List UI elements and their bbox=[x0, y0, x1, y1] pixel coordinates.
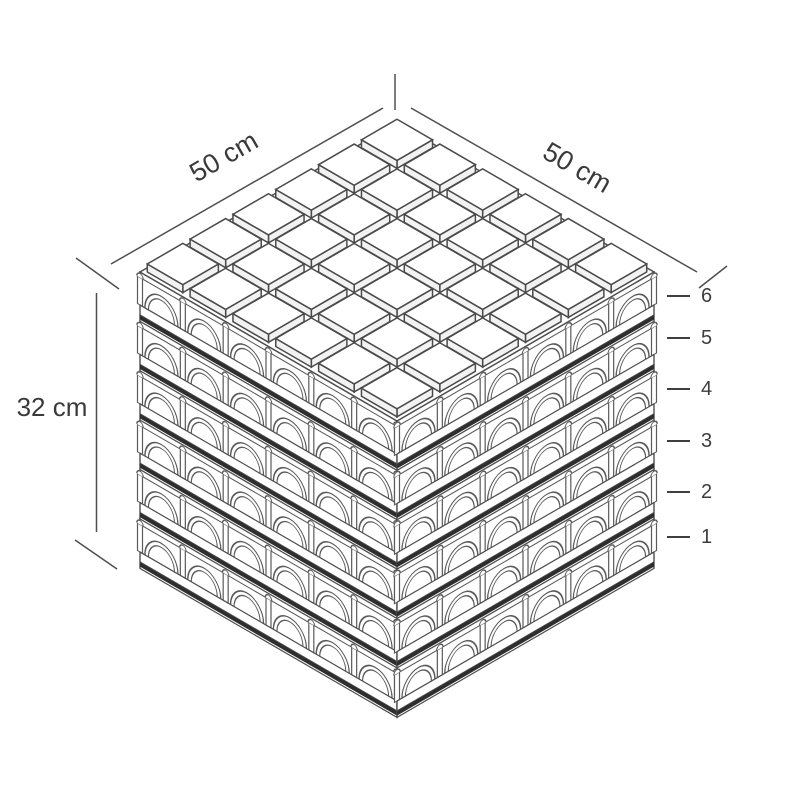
layer-number-label: 5 bbox=[701, 328, 712, 348]
isometric-stack-drawing bbox=[0, 0, 800, 800]
layered-tray-stack-diagram: 50 cm 50 cm 32 cm 6 5 4 3 2 1 bbox=[0, 0, 800, 800]
layer-number-label: 6 bbox=[701, 286, 712, 306]
layer-number-label: 2 bbox=[701, 482, 712, 502]
layer-number-label: 3 bbox=[701, 431, 712, 451]
layer-number-label: 1 bbox=[701, 527, 712, 547]
layer-leader-ticks bbox=[667, 296, 690, 537]
height-dimension-label: 32 cm bbox=[17, 394, 88, 420]
layer-number-label: 4 bbox=[701, 379, 712, 399]
